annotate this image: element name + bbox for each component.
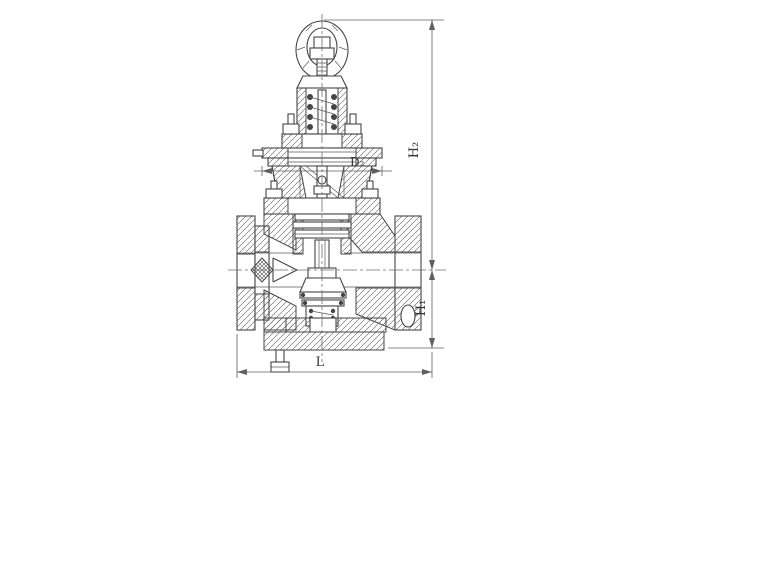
dim-label-l: L [316, 355, 325, 370]
valve-technical-drawing: H₂ H₁ L D₂ [0, 0, 778, 588]
drawing-canvas: H₂ H₁ L D₂ [0, 0, 778, 588]
dim-label-h2: H₂ [407, 142, 422, 159]
flange-bolt-hole [401, 305, 415, 327]
dim-label-h1: H₁ [414, 300, 429, 317]
bottom-cap-bolt [266, 350, 294, 372]
seat-plate [286, 318, 386, 332]
dim-label-d2: D₂ [350, 155, 365, 169]
